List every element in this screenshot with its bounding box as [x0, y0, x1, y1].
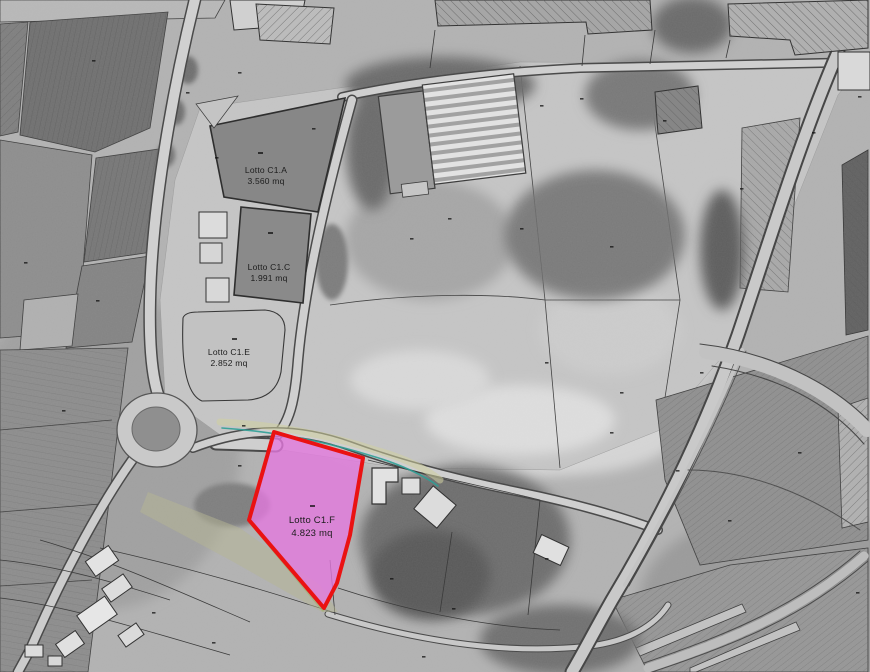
lot-c1a-area: 3.560 mq: [247, 176, 284, 186]
building-top-left-b-hatch: [256, 4, 334, 44]
lot-c1e-name: Lotto C1.E: [208, 347, 250, 357]
lot-c1e-area: 2.852 mq: [210, 358, 247, 368]
roundabout: [117, 393, 197, 467]
lot-c1c-polygon: [234, 207, 311, 303]
lot-c1f-area: 4.823 mq: [291, 528, 332, 539]
building-top-right-annex: [838, 52, 870, 90]
house-small: [402, 478, 420, 494]
farmhouse-3: [206, 278, 229, 302]
lot-c1f-name: Lotto C1.F: [289, 515, 335, 526]
map-canvas: Lotto C1.A 3.560 mq Lotto C1.C 1.991 mq …: [0, 0, 870, 672]
sw-shed-2: [48, 656, 62, 666]
farmhouse-1: [199, 212, 227, 238]
dark-hatched-parcel-hatch: [655, 86, 702, 134]
site-plan-map: Lotto C1.A 3.560 mq Lotto C1.C 1.991 mq …: [0, 0, 870, 672]
lot-c1a-name: Lotto C1.A: [245, 165, 287, 175]
lot-c1c-name: Lotto C1.C: [248, 262, 291, 272]
turnaround: [216, 443, 276, 445]
farmhouse-2: [200, 243, 222, 263]
lot-c1c-area: 1.991 mq: [250, 273, 287, 283]
sw-shed-1: [25, 645, 43, 657]
